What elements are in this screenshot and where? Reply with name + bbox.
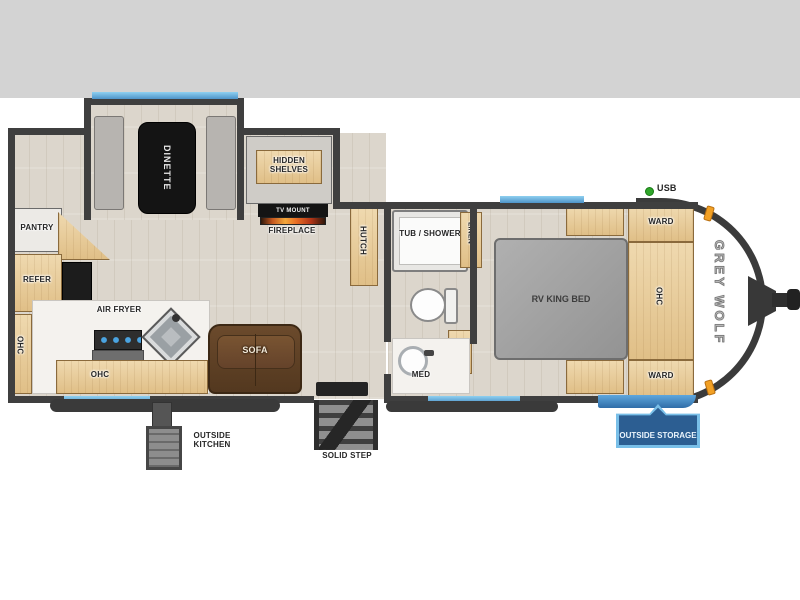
outside-kitchen	[146, 426, 182, 470]
wall-rear	[8, 128, 15, 403]
hutch-label: HUTCH	[358, 226, 367, 255]
background-gray-band	[0, 0, 800, 98]
solid-step-rail	[319, 400, 373, 450]
tv-mount-label: TV MOUNT	[276, 208, 310, 214]
dinette-label: DINETTE	[162, 145, 172, 191]
brand-logo: GREY WOLF	[712, 240, 727, 370]
ward-top-label: WARD	[628, 218, 694, 227]
king-bed-label: RV KING BED	[531, 294, 591, 304]
stove	[94, 330, 142, 350]
usb-indicator-icon	[645, 187, 654, 196]
sofa-label: SOFA	[224, 346, 286, 356]
slide-wall-right	[237, 98, 244, 220]
bath-faucet	[424, 350, 434, 356]
ohc-counter-label: OHC	[78, 371, 122, 380]
fireplace-label: FIREPLACE	[246, 227, 338, 236]
king-bed: RV KING BED	[494, 238, 628, 360]
slide-wall-top	[84, 98, 244, 105]
bed-slide-strip	[500, 196, 584, 203]
pantry-label: PANTRY	[12, 224, 62, 233]
fireplace-flames	[260, 217, 326, 225]
air-fryer-label: AIR FRYER	[96, 306, 142, 315]
wall-top-left	[8, 128, 88, 135]
tub-shower	[392, 210, 468, 272]
ohc-left-label: OHC	[15, 336, 24, 354]
bathroom-wall-left-stub	[384, 374, 391, 403]
ohc-bedroom-label: OHC	[654, 287, 663, 305]
hitch-coupler	[787, 289, 800, 310]
dinette-table: DINETTE	[138, 122, 196, 214]
dinette-bench-right	[206, 116, 236, 210]
entry-door-threshold	[316, 382, 368, 396]
underbody-bar-right	[386, 401, 558, 412]
floorplan-canvas: GREY WOLF PANTRY REFER OHC AIR FRYER OHC…	[0, 0, 800, 600]
sofa	[208, 324, 302, 394]
tub-shower-label: TUB / SHOWER	[396, 230, 464, 239]
nightstand-top	[566, 206, 624, 236]
ward-bottom-label: WARD	[628, 372, 694, 381]
toilet	[410, 288, 446, 322]
slide-wall-left	[84, 98, 91, 220]
nose-bottom-accent	[598, 395, 696, 408]
bathroom-wall-left	[384, 202, 391, 342]
hidden-shelves-label: HIDDEN SHELVES	[256, 157, 322, 174]
slide-awning-strip	[92, 92, 238, 99]
bathroom-bedroom-wall	[470, 202, 477, 344]
wall-top-center	[240, 128, 340, 135]
outside-storage-badge: OUTSIDE STORAGE	[616, 404, 700, 448]
outside-kitchen-label: OUTSIDE KITCHEN	[184, 432, 240, 449]
toilet-tank	[444, 288, 458, 324]
solid-step	[314, 400, 378, 450]
tv-mount: TV MOUNT	[258, 204, 328, 217]
dinette-bench-left	[94, 116, 124, 210]
outside-storage-label: OUTSIDE STORAGE	[619, 432, 696, 445]
usb-label: USB	[657, 184, 687, 194]
faucet	[172, 314, 180, 322]
outside-storage-badge-inner: OUTSIDE STORAGE	[619, 407, 697, 445]
wall-step-down	[333, 128, 340, 209]
nightstand-bottom	[566, 360, 624, 394]
sofa-cushion-divider	[255, 334, 256, 386]
solid-step-label: SOLID STEP	[304, 452, 390, 461]
med-label: MED	[396, 371, 446, 380]
refer-label: REFER	[12, 276, 62, 285]
